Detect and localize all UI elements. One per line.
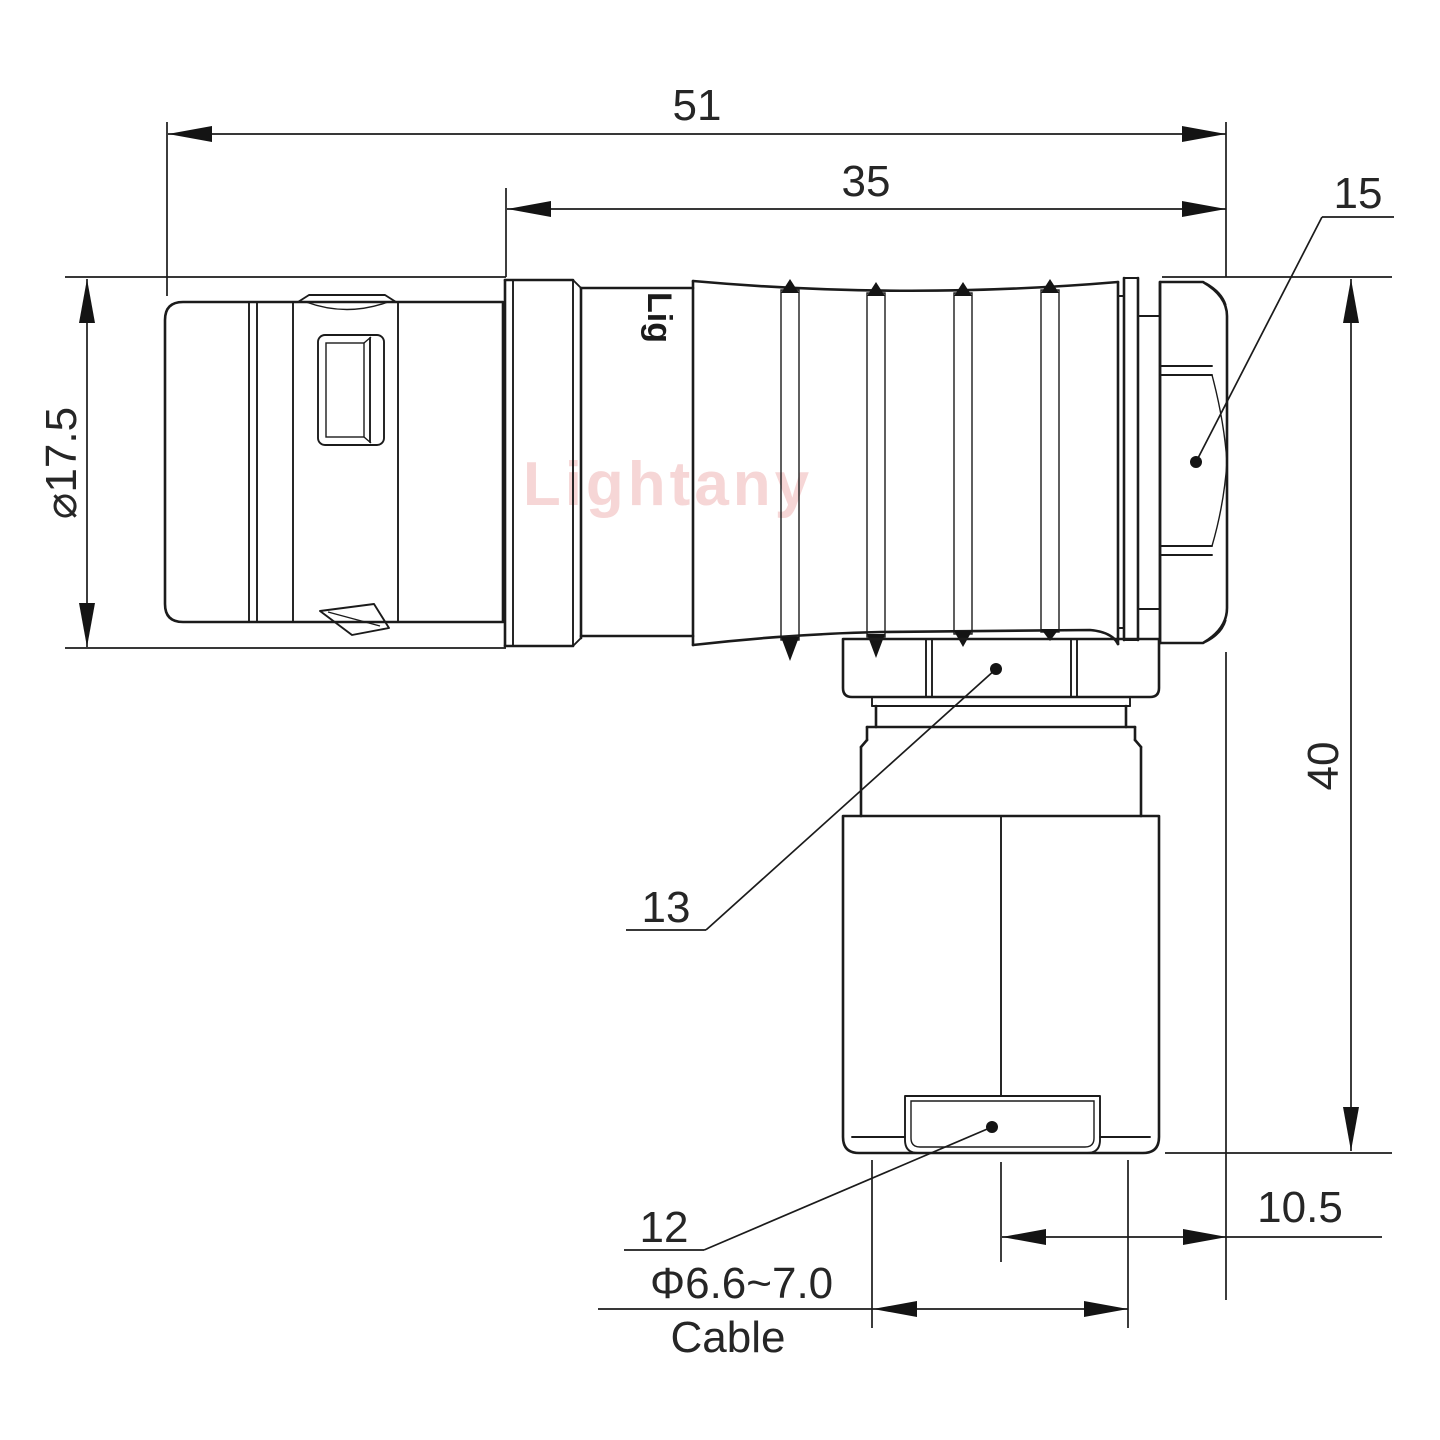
- label-backnut-text: 15: [1334, 169, 1383, 218]
- technical-drawing-canvas: Lightany: [0, 0, 1440, 1440]
- cable-bushing-window: [905, 1096, 1100, 1153]
- dim-exit-offset-text: 10.5: [1257, 1183, 1343, 1232]
- dim-cable-label-text: Cable: [671, 1313, 786, 1362]
- washer-ring: [1124, 278, 1160, 640]
- dim-front-length-text: 35: [842, 157, 891, 206]
- leader-gland-nut: 13: [626, 663, 1002, 932]
- dim-cable-range-text: Φ6.6~7.0: [650, 1259, 833, 1308]
- coupling-sleeve: [165, 295, 503, 635]
- dimension-height: 40: [1162, 277, 1392, 1153]
- dimension-cable: Φ6.6~7.0 Cable: [598, 1160, 1128, 1362]
- label-gland-nut-text: 13: [642, 883, 691, 932]
- label-cable-bushing-text: 12: [640, 1203, 689, 1252]
- watermark-text: Lightany: [523, 450, 813, 519]
- connector-side-view: Lig: [165, 278, 1227, 1153]
- dim-shell-diameter-text: ⌀17.5: [37, 407, 86, 519]
- leader-backnut: 15: [1190, 169, 1394, 468]
- dimension-overall-length: 51: [167, 81, 1226, 296]
- knurl-strips: [781, 279, 1059, 661]
- vertical-leg: [843, 639, 1159, 1153]
- dimension-front-length: 35: [506, 157, 1226, 277]
- dim-height-text: 40: [1299, 742, 1348, 791]
- body-print-text: Lig: [640, 292, 678, 343]
- dim-overall-length-text: 51: [673, 81, 722, 130]
- dimension-shell-diameter: ⌀17.5: [37, 277, 506, 648]
- bayonet-window: [318, 335, 384, 445]
- leader-cable-bushing: 12: [624, 1121, 998, 1252]
- connector-drawing-svg: Lightany: [0, 0, 1440, 1440]
